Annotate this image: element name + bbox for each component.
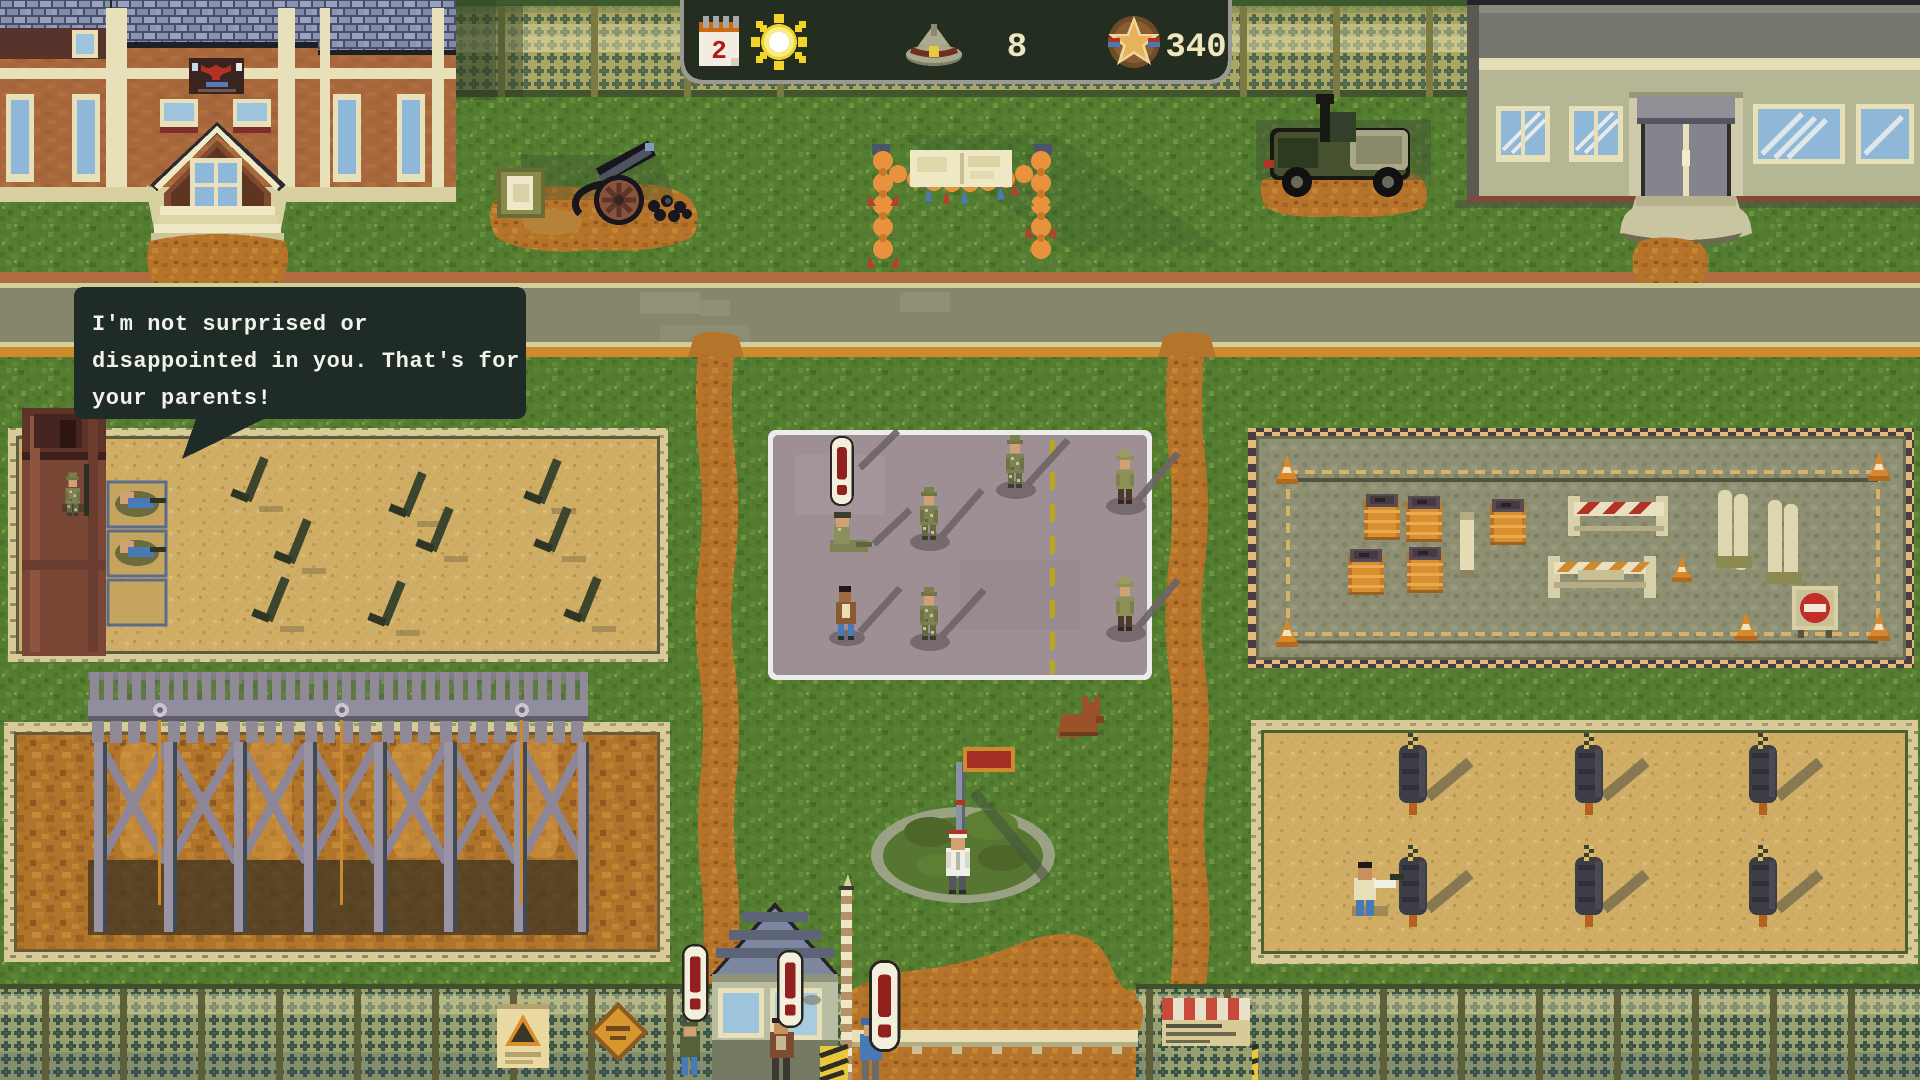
svg-text:340: 340: [1165, 29, 1226, 67]
svg-text:2: 2: [711, 36, 727, 66]
svg-text:your parents!: your parents!: [92, 386, 271, 411]
svg-text:I'm not surprised or: I'm not surprised or: [92, 312, 368, 337]
svg-text:disappointed in you. That's fo: disappointed in you. That's for: [92, 349, 520, 374]
svg-text:8: 8: [1007, 29, 1027, 67]
